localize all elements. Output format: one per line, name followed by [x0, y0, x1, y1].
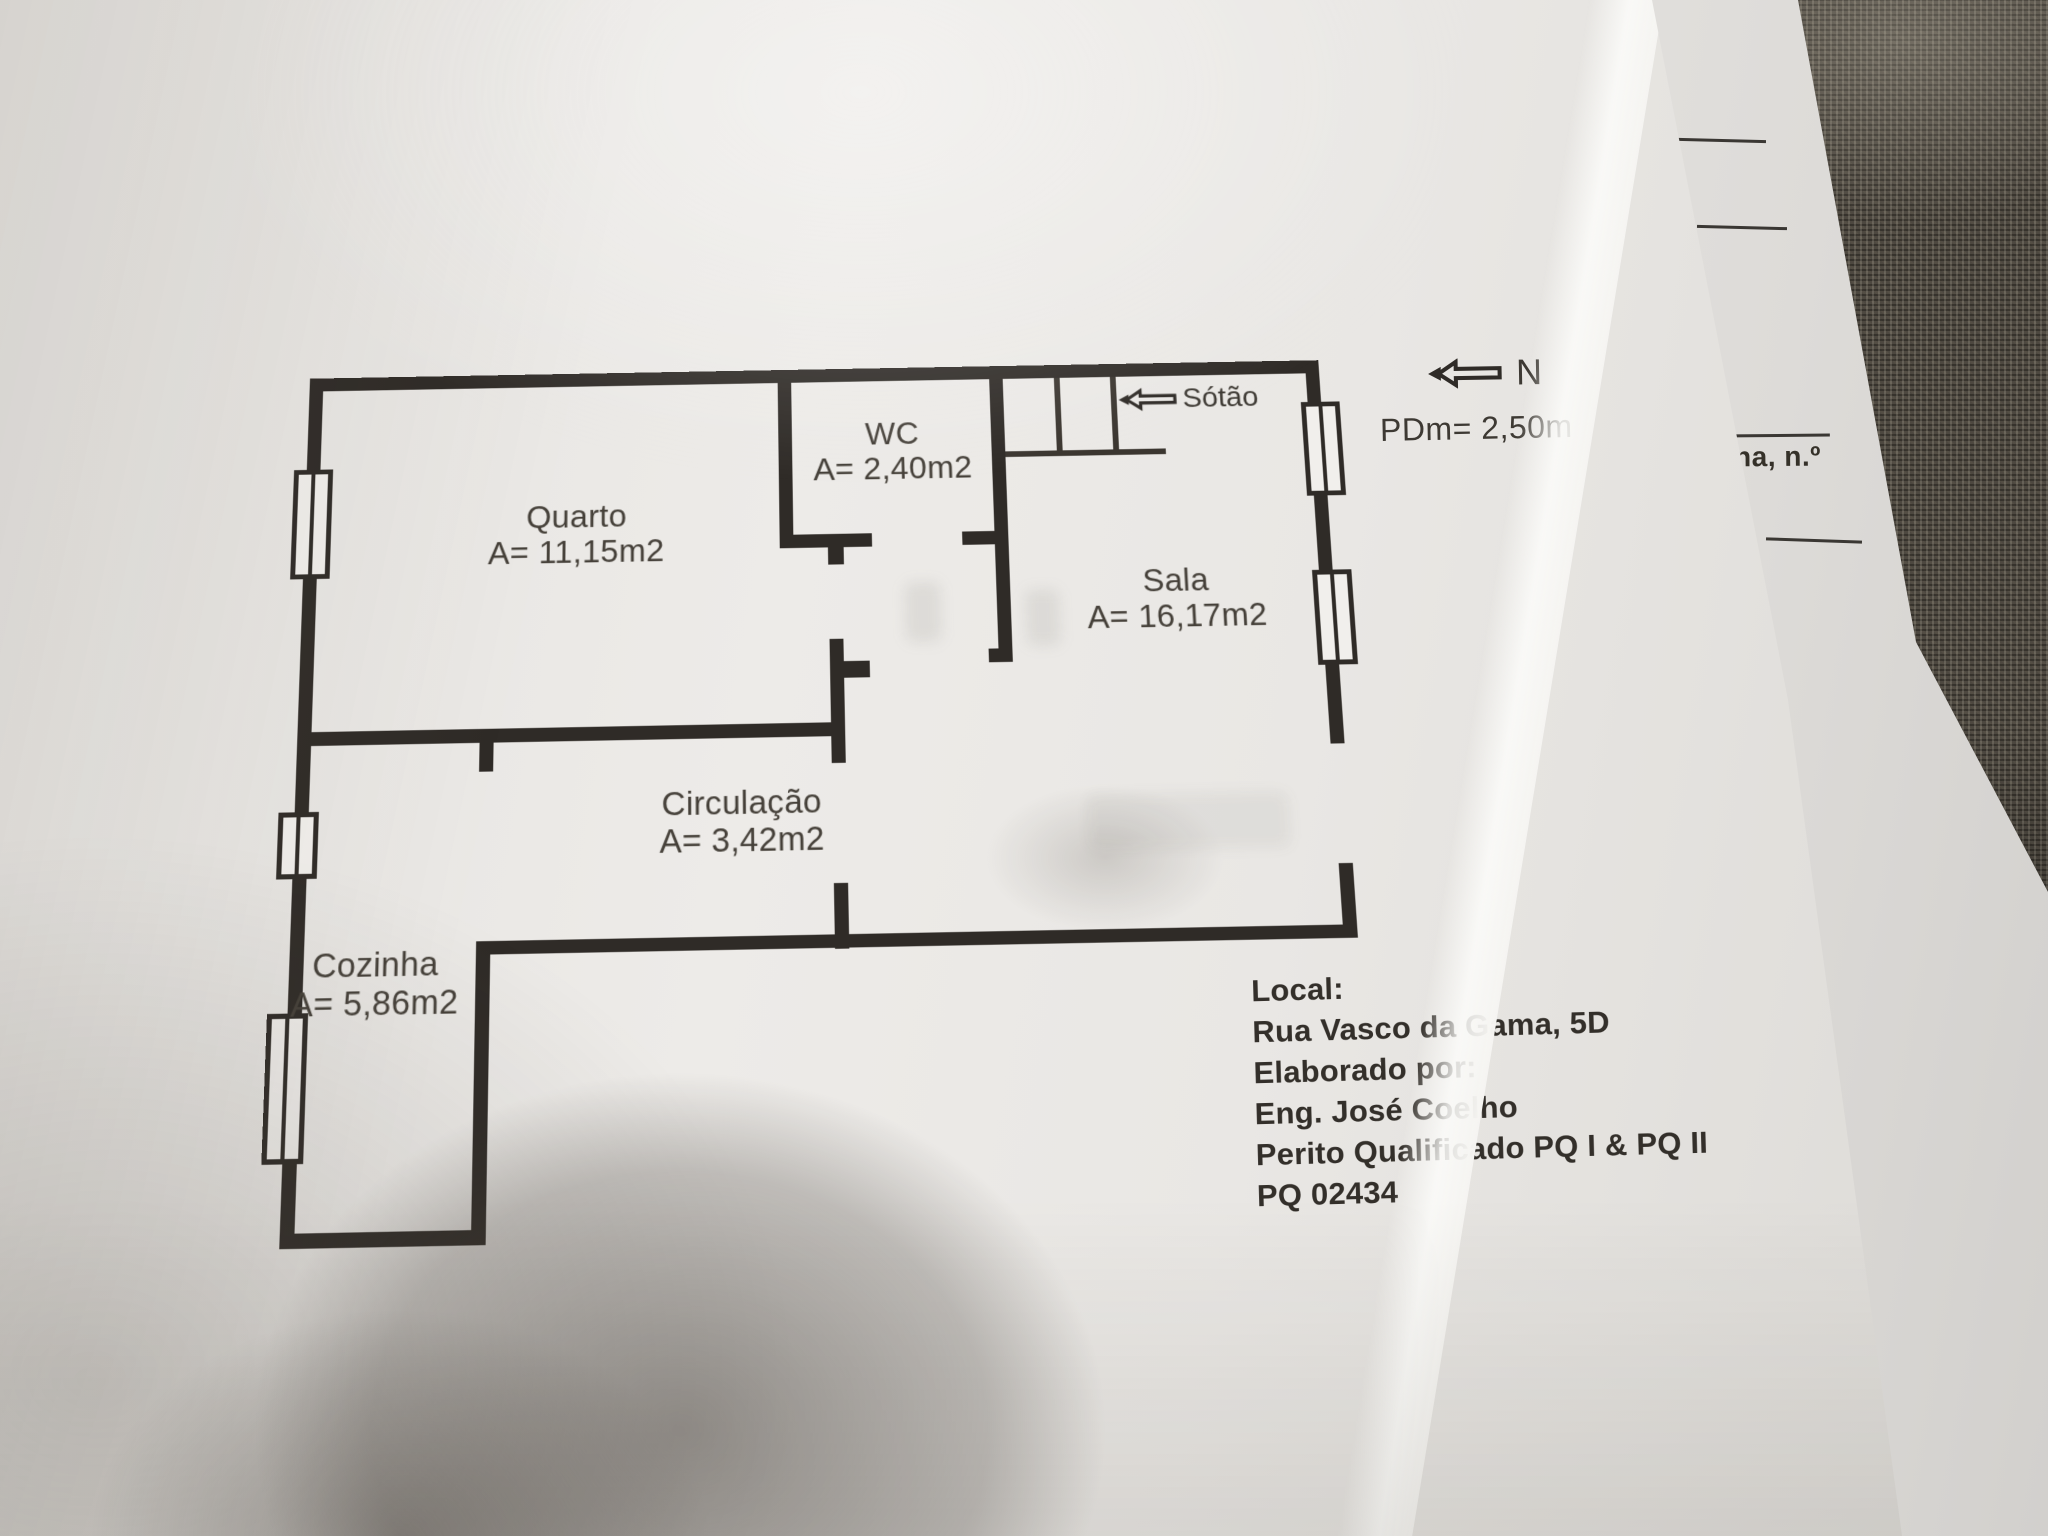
- room-label-sala: Sala A= 16,17m2: [1085, 560, 1268, 635]
- bleed-through-mark: [904, 582, 941, 643]
- room-area: A= 16,17m2: [1087, 596, 1269, 635]
- room-label-circulacao: Circulação A= 3,42m2: [659, 782, 825, 860]
- attic-label: Sótão: [1182, 382, 1260, 415]
- window-symbol: [1301, 401, 1346, 495]
- room-label-cozinha: Cozinha A= 5,86m2: [290, 944, 460, 1024]
- room-area: A= 5,86m2: [290, 982, 459, 1024]
- door-jamb-cozinha: [479, 743, 494, 772]
- wall-wc-left: [778, 383, 794, 544]
- wall-right-upper: [1306, 373, 1321, 402]
- window-symbol: [1312, 569, 1358, 665]
- bleed-through-mark: [1086, 791, 1291, 850]
- wall-right-mid: [1314, 495, 1333, 570]
- underlying-sheet-line: [1766, 537, 1862, 543]
- window-symbol: [290, 469, 333, 579]
- window-symbol: [261, 1013, 308, 1165]
- window-symbol: [276, 812, 319, 880]
- wall-wc-bottom: [780, 533, 873, 548]
- wall-circulacao-sala-lower: [834, 883, 849, 949]
- wall-south-long: [476, 924, 1358, 955]
- underlying-sheet-line: [1678, 138, 1766, 143]
- room-area: A= 11,15m2: [488, 532, 665, 571]
- room-name: Sala: [1085, 560, 1266, 599]
- wall-circulacao-sala-upper: [830, 639, 846, 763]
- north-arrow-icon: [1428, 358, 1503, 389]
- wall-right-lower: [1325, 664, 1344, 743]
- attic-callout: Sótão: [1118, 382, 1259, 416]
- wall-quarto-bottom: [297, 722, 845, 746]
- door-jamb-wc: [828, 547, 844, 565]
- stairs-tread-line: [1054, 378, 1063, 456]
- room-name: Quarto: [488, 497, 664, 535]
- sotao-arrow-icon: [1118, 387, 1177, 412]
- room-name: WC: [812, 415, 971, 452]
- room-name: Circulação: [659, 782, 824, 822]
- stairs-base-line: [1005, 448, 1166, 457]
- room-area: A= 3,42m2: [659, 819, 824, 860]
- underlying-sheet-line: [1697, 225, 1787, 230]
- door-jamb-sala-top: [844, 661, 870, 678]
- bleed-through-mark: [1025, 589, 1061, 646]
- room-name: Cozinha: [291, 944, 459, 986]
- wall-cozinha-east: [471, 941, 491, 1245]
- wall-wc-right: [989, 379, 1013, 661]
- wall-wc-right-foot: [989, 648, 1013, 662]
- room-area: A= 2,40m2: [813, 449, 973, 487]
- wall-cozinha-bottom: [279, 1230, 486, 1249]
- photo-of-floor-plan: ana, n.º: [0, 0, 2048, 1536]
- room-label-quarto: Quarto A= 11,15m2: [488, 497, 665, 571]
- room-label-wc: WC A= 2,40m2: [812, 415, 972, 487]
